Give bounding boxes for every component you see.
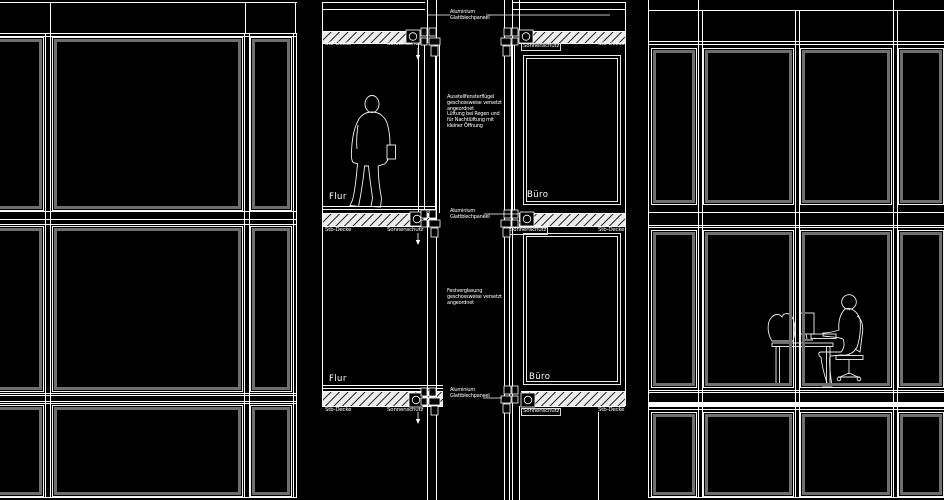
grid-line-vertical <box>295 2 296 33</box>
window-pane-frame <box>900 414 942 495</box>
structure-layer: Stb-DeckeSonnenschutzSonnenschutzStb-Dec… <box>0 0 944 500</box>
window-pane <box>0 226 44 392</box>
grid-line-vertical <box>509 226 510 500</box>
grid-line-vertical <box>625 2 626 406</box>
concrete-slab-hatch <box>519 213 625 227</box>
grid-line-horizontal <box>648 41 944 42</box>
window-pane-frame <box>54 228 241 390</box>
grid-line-horizontal <box>648 212 944 213</box>
window-pane <box>651 412 697 497</box>
label-stb_decke: Stb-Decke <box>325 42 351 48</box>
window-pane <box>800 412 892 497</box>
window-pane <box>52 405 243 497</box>
label-text: Glattblechpaneel <box>450 394 490 399</box>
grid-line-vertical <box>418 43 419 213</box>
concrete-slab-hatch <box>521 391 625 407</box>
grid-line-vertical <box>427 226 428 500</box>
window-pane <box>250 226 292 392</box>
grid-line-horizontal <box>0 2 297 3</box>
grid-line-vertical <box>50 2 51 33</box>
grid-line-vertical <box>504 0 505 500</box>
window-pane-frame <box>705 232 792 386</box>
grid-line-vertical <box>50 33 51 497</box>
window-pane-frame <box>802 50 890 203</box>
window-pane-frame <box>54 407 241 495</box>
window-pane <box>52 37 243 211</box>
label-sonnenschutz: Sonnenschutz <box>508 227 548 235</box>
label-buero: Büro <box>527 191 548 200</box>
grid-line-vertical <box>648 0 649 497</box>
grid-line-vertical <box>698 0 699 497</box>
label-stb_decke: Stb-Decke <box>598 408 624 414</box>
grid-line-vertical <box>322 2 323 406</box>
grid-line-vertical <box>424 43 425 213</box>
grid-line-horizontal <box>322 385 443 386</box>
label-text: Glattblechpaneel <box>450 215 490 220</box>
window-pane-frame <box>653 50 695 203</box>
window-pane <box>800 230 892 388</box>
label-text: kleiner Öffnung <box>447 124 483 129</box>
spandrel-strip <box>648 402 944 407</box>
grid-line-vertical <box>512 0 513 500</box>
grid-line-vertical <box>519 0 520 43</box>
grid-line-horizontal <box>322 209 437 210</box>
grid-line-vertical <box>893 0 894 497</box>
window-pane-frame <box>900 50 942 203</box>
label-flur: Flur <box>329 375 347 384</box>
grid-line-vertical <box>435 43 436 226</box>
window-pane <box>898 48 944 205</box>
window-pane <box>703 48 794 205</box>
window-pane <box>800 48 892 205</box>
grid-line-vertical <box>439 43 440 213</box>
window-pane <box>0 405 44 497</box>
grid-line-horizontal <box>512 9 625 10</box>
grid-line-vertical <box>795 10 796 497</box>
window-pane-frame <box>0 39 42 209</box>
window-pane <box>651 230 697 388</box>
grid-line-horizontal <box>322 388 443 389</box>
window-pane <box>52 226 243 392</box>
window-pane <box>703 230 794 388</box>
window-pane-frame <box>0 228 42 390</box>
window-pane <box>0 37 44 211</box>
window-pane <box>250 37 292 211</box>
window-pane-frame <box>802 232 890 386</box>
concrete-slab-hatch <box>322 391 443 407</box>
grid-line-vertical <box>296 33 297 497</box>
inner-window-frame <box>526 58 618 202</box>
window-pane-frame <box>705 414 792 495</box>
label-stb_decke: Stb-Decke <box>598 228 624 234</box>
window-pane-frame <box>252 228 290 390</box>
label-buero: Büro <box>529 373 550 382</box>
window-pane-frame <box>900 232 942 386</box>
label-sonnenschutz: Sonnenschutz <box>521 408 561 416</box>
window-pane <box>703 412 794 497</box>
window-pane-frame <box>54 39 241 209</box>
label-text: Glattblechpaneel <box>450 16 490 21</box>
inner-window-frame <box>526 236 618 382</box>
window-pane-frame <box>653 232 695 386</box>
grid-line-vertical <box>293 33 294 497</box>
concrete-slab-hatch <box>322 213 437 227</box>
grid-line-horizontal <box>648 44 944 45</box>
window-pane <box>250 405 292 497</box>
label-sonnenschutz: Sonnenschutz <box>387 408 423 414</box>
label-stb_decke: Stb-Decke <box>325 408 351 414</box>
grid-line-horizontal <box>648 227 944 228</box>
label-sonnenschutz: Sonnenschutz <box>387 228 423 234</box>
label-sonnenschutz: Sonnenschutz <box>387 42 423 48</box>
window-pane-frame <box>705 50 792 203</box>
label-text: angeordnet <box>447 301 474 306</box>
grid-line-vertical <box>598 412 599 500</box>
cad-facade-drawing: Stb-DeckeSonnenschutzSonnenschutzStb-Dec… <box>0 0 944 500</box>
window-pane-frame <box>653 414 695 495</box>
grid-line-horizontal <box>648 392 944 393</box>
grid-line-vertical <box>244 33 245 497</box>
window-pane <box>898 230 944 388</box>
grid-line-horizontal <box>648 390 944 391</box>
window-pane-frame <box>252 407 290 495</box>
grid-line-vertical <box>511 43 512 226</box>
grid-line-horizontal <box>512 2 625 3</box>
label-stb_decke: Stb-Decke <box>598 42 624 48</box>
grid-line-vertical <box>45 33 46 497</box>
grid-line-horizontal <box>322 2 425 3</box>
grid-line-vertical <box>514 43 515 213</box>
label-stb_decke: Stb-Decke <box>325 228 351 234</box>
window-pane <box>898 412 944 497</box>
grid-line-horizontal <box>648 225 944 226</box>
grid-line-vertical <box>245 2 246 33</box>
grid-line-horizontal <box>322 206 437 207</box>
window-pane-frame <box>252 39 290 209</box>
grid-line-horizontal <box>0 497 297 498</box>
grid-line-horizontal <box>322 9 425 10</box>
grid-line-horizontal <box>648 409 944 410</box>
window-pane-frame <box>802 414 890 495</box>
grid-line-vertical <box>427 0 428 43</box>
label-flur: Flur <box>329 193 347 202</box>
window-pane-frame <box>0 407 42 495</box>
grid-line-vertical <box>519 406 520 500</box>
label-sonnenschutz: Sonnenschutz <box>521 43 561 51</box>
grid-line-vertical <box>436 0 437 500</box>
grid-line-horizontal <box>648 497 944 498</box>
window-pane <box>651 48 697 205</box>
grid-line-horizontal <box>648 10 944 11</box>
